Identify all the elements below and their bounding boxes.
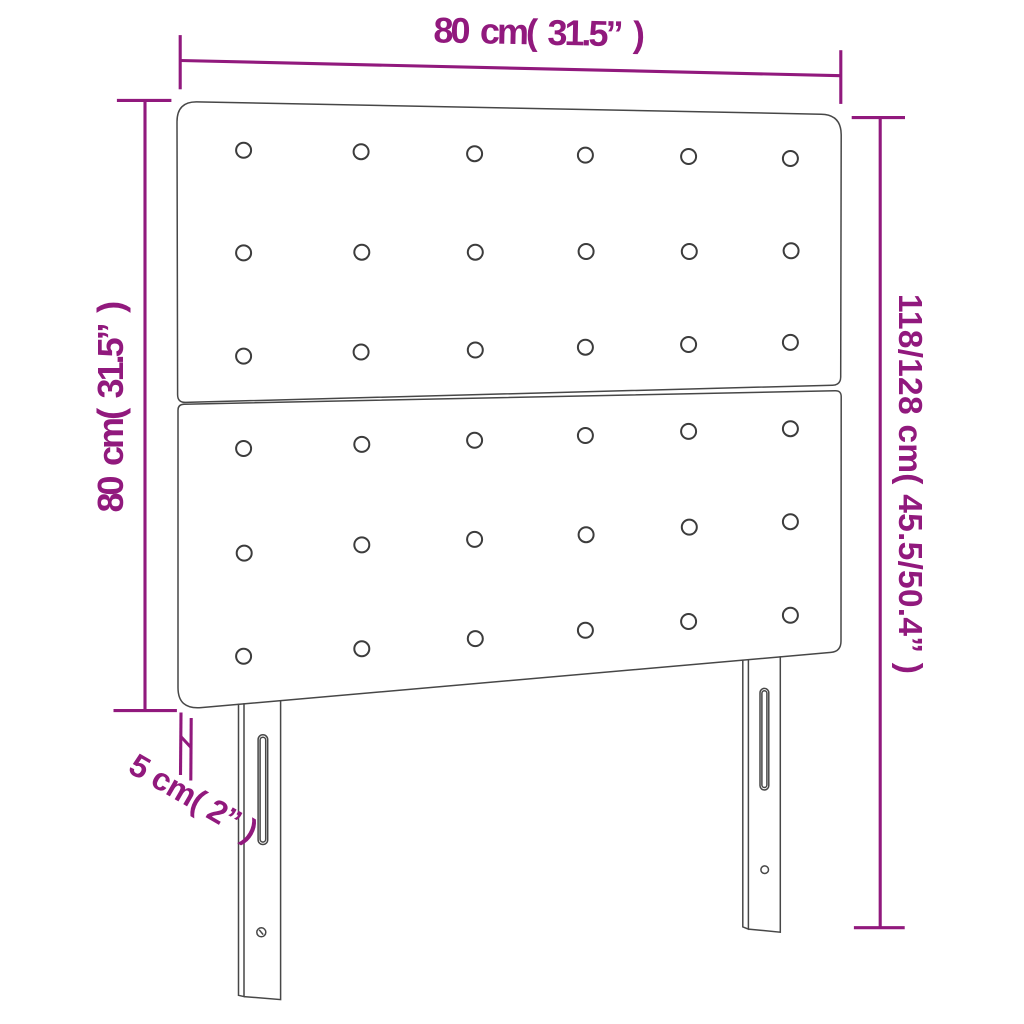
svg-text:118/128 cm( 45.5/50.4” ): 118/128 cm( 45.5/50.4” ) — [891, 294, 928, 674]
svg-text:80 cm( 31.5” ): 80 cm( 31.5” ) — [433, 9, 644, 54]
svg-text:80 cm( 31.5” ): 80 cm( 31.5” ) — [90, 302, 131, 513]
